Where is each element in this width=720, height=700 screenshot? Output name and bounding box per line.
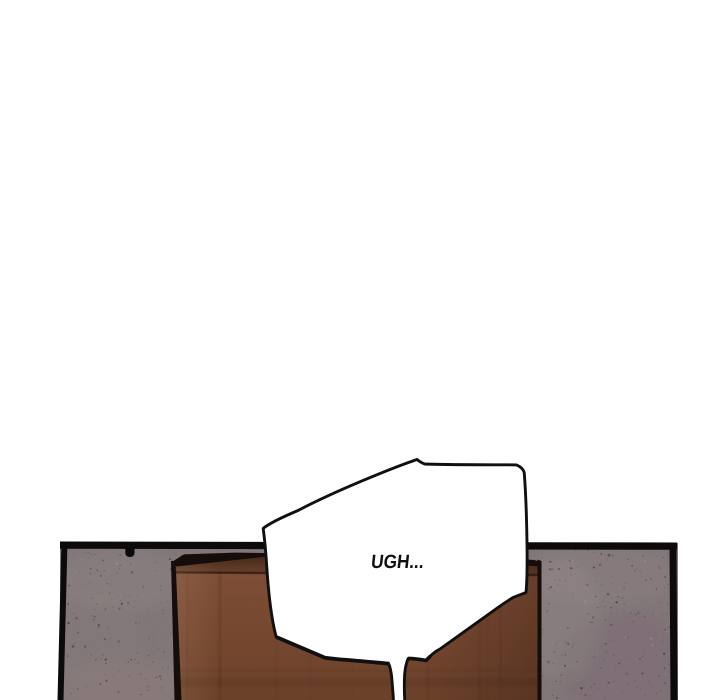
svg-text:UGH...: UGH... [370, 550, 425, 572]
